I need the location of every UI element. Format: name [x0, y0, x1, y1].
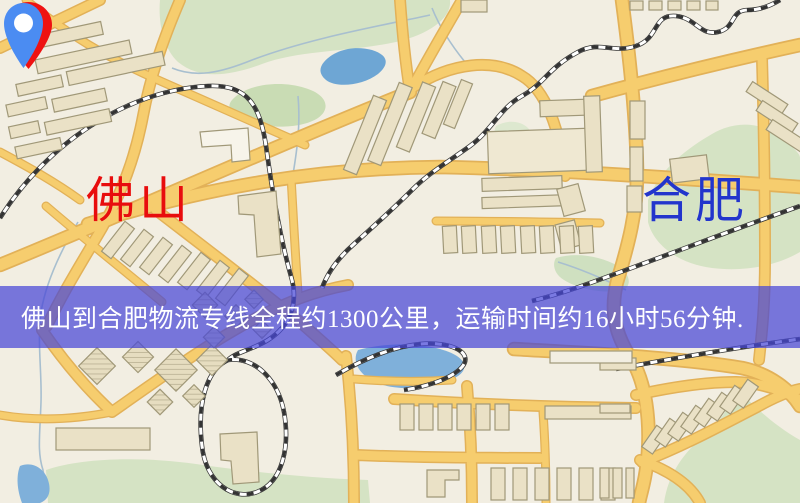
destination-pin-icon	[0, 0, 47, 70]
route-info-banner: 佛山到合肥物流专线全程约1300公里，运输时间约16小时56分钟.	[0, 286, 800, 348]
destination-label: 合肥	[642, 176, 748, 225]
route-info-text: 佛山到合肥物流专线全程约1300公里，运输时间约16小时56分钟.	[21, 299, 744, 335]
origin-label: 佛山	[86, 176, 192, 225]
map-svg	[0, 0, 800, 503]
map-screenshot: 佛山 合肥 佛山到合肥物流专线全程约1300公里，运输时间约16小时56分钟.	[0, 0, 800, 503]
